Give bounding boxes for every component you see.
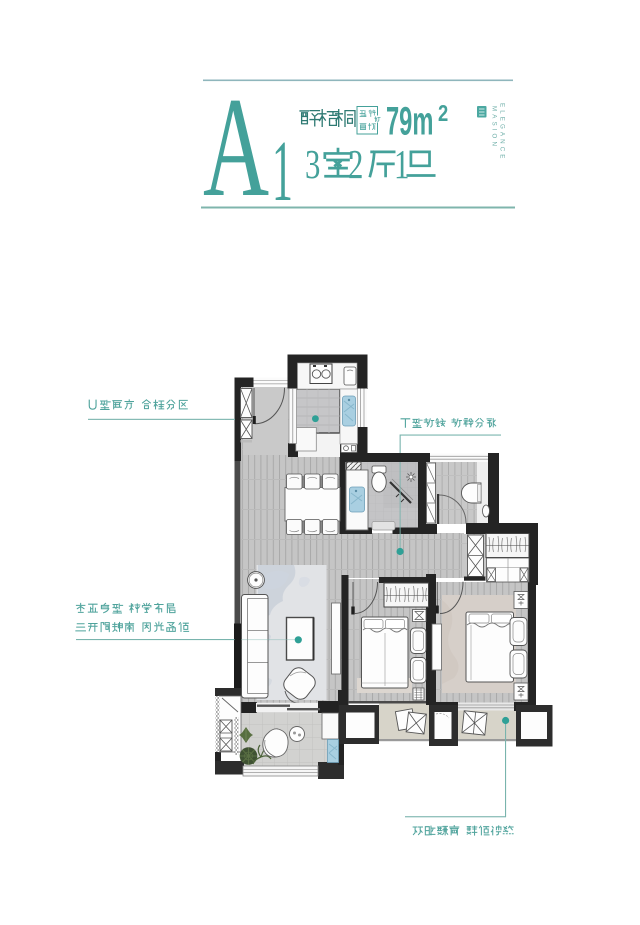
svg-text:MASION: MASION bbox=[491, 106, 498, 149]
svg-text:2: 2 bbox=[348, 142, 363, 187]
svg-text:1: 1 bbox=[394, 142, 409, 187]
svg-text:79m: 79m bbox=[386, 99, 433, 143]
svg-text:3: 3 bbox=[305, 142, 320, 187]
svg-text:A: A bbox=[203, 68, 269, 226]
svg-text:2: 2 bbox=[438, 101, 448, 126]
svg-text:ELEGANCE: ELEGANCE bbox=[499, 103, 506, 162]
svg-text:1: 1 bbox=[272, 122, 293, 219]
